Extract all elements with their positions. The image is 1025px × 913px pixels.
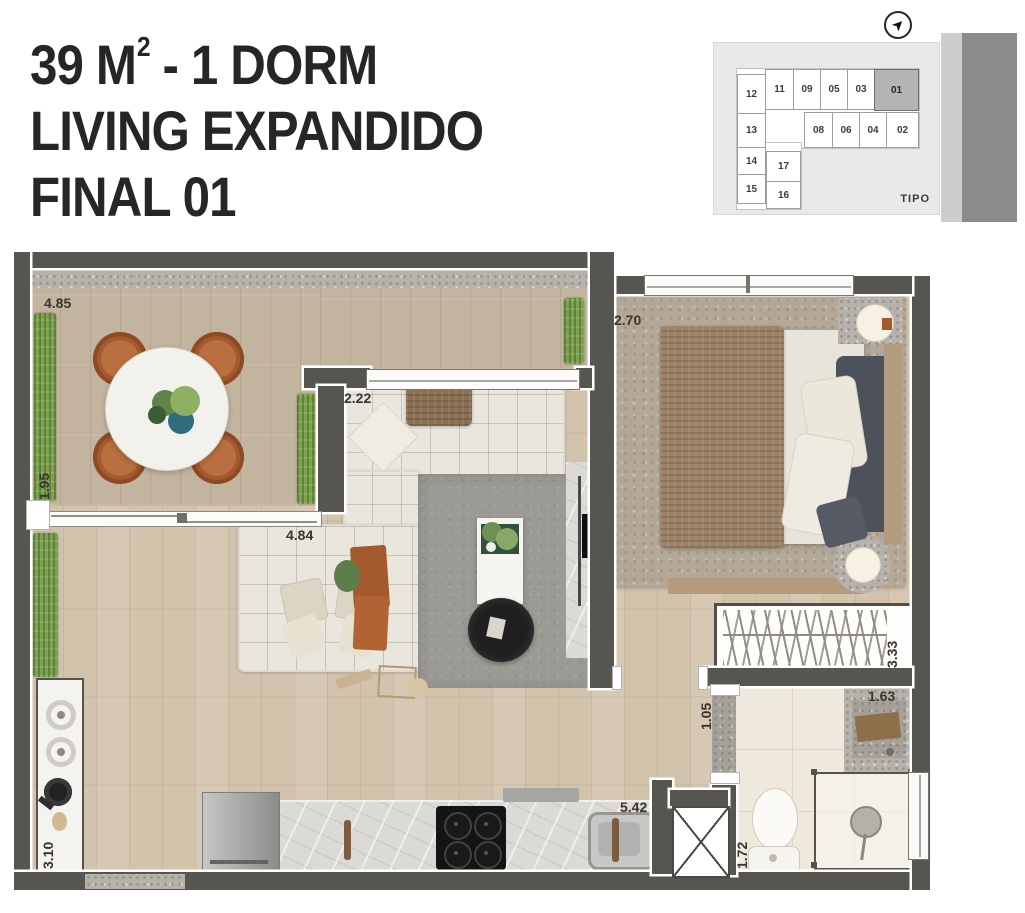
wall-balcony-divider [318,386,344,512]
dim-bedroom-width: 2.70 [614,312,641,328]
door-jamb-pillar [26,500,50,530]
sliding-door-rail [183,521,317,523]
tray-cup [486,542,496,552]
bedroom-window-mullion [746,276,750,293]
title-line-3: FINAL 01 [30,164,483,230]
table-plant-leaf-dark [148,406,166,424]
keyplan-unit-06: 06 [832,112,860,148]
service-window-sill [85,874,185,889]
counter-deco [52,812,67,831]
burner-icon [444,841,472,869]
dim-kitchen-length: 5.42 [620,799,647,815]
planter-grass-bedroom-wall [564,298,584,364]
balcony-sliding-door [46,511,322,527]
floorplan-page: 39 M2 - 1 DORM LIVING EXPANDIDO FINAL 01… [0,0,1025,913]
keyplan-unit-16: 16 [766,181,801,209]
superscript-2: 2 [137,31,150,62]
burner-ring-icon [46,737,76,767]
keyplan-unit-15: 15 [737,174,766,204]
shower-corner-post [811,769,817,775]
keyplan-unit-14: 14 [737,147,766,175]
plan-title: 39 M2 - 1 DORM LIVING EXPANDIDO FINAL 01 [30,14,545,230]
nightstand-deco [882,318,892,330]
shower-corner-post [811,862,817,868]
dim-bath-depth: 1.72 [734,842,750,869]
bed-headboard [884,340,902,544]
living-window [366,369,580,390]
keyplan-unit-04: 04 [859,112,887,148]
balcony-floor-strip [320,288,590,370]
keyplan-unit-17: 17 [766,151,801,182]
burner-icon [444,812,472,840]
wall-left [14,252,30,874]
dim-living-window: 2.22 [344,390,371,406]
keyplan-unit-11: 11 [765,69,794,110]
sliding-door-rail [51,515,181,517]
toilet-bowl [752,788,798,850]
keyplan-edge-strip-light [941,33,962,222]
sink-bowl [598,822,640,856]
dim-closet-depth: 3.33 [884,641,900,668]
keyplan-unit-08: 08 [804,112,833,148]
shower-window [908,772,929,860]
bedroom-door-jamb [612,666,622,690]
wall-balcony-cap [304,368,370,388]
vanity-tray [855,712,901,742]
burner-icon [474,812,502,840]
balcony-ledge [30,266,590,288]
keyplan-unit-01-highlighted: 01 [874,69,919,111]
dim-varanda-width: 4.85 [44,295,71,311]
wall-living-bedroom [590,252,614,688]
bedroom-door-jamb [698,666,708,690]
range-hood-shelf [503,788,579,802]
counter-faucet [344,820,351,860]
nightstand-lamp [845,547,881,583]
keyplan-tipo-label: TIPO [850,193,930,205]
shaft-duct-symbol [672,806,730,878]
burner-ring-icon [46,700,76,730]
sink-faucet [612,818,619,862]
sliding-door-handle [177,513,187,523]
cooktop [436,806,506,870]
wall-kitchen-stub [652,780,672,874]
dim-hall-width: 1.05 [698,703,714,730]
bathroom-door-jamb [710,684,740,696]
vanity-faucet [886,748,894,756]
refrigerator-handle [210,860,268,864]
bathroom-door-jamb [710,772,740,784]
keyplan-unit-12: 12 [737,74,766,114]
shower-head-icon [850,806,882,838]
keyplan-unit-03: 03 [847,69,875,110]
title-line-area: 39 M2 - 1 DORM [30,14,483,98]
keyplan-edge-strip-dark [962,33,1017,222]
keyplan-unit-02: 02 [886,112,919,148]
planter-grass-divider [297,394,317,504]
floor-deco-basket [408,678,428,698]
bed-bench [668,578,864,594]
keyplan-unit-05: 05 [820,69,848,110]
tray-plant [496,528,518,550]
dim-varanda-depth: 1.95 [36,473,52,500]
bathroom-door-threshold [712,694,736,774]
toilet-flush-button [769,854,777,862]
keyplan-unit-09: 09 [793,69,821,110]
keyplan-unit-13: 13 [737,113,766,148]
table-plant-leaf [170,386,200,416]
compass-north-icon: ➤ [884,11,912,39]
dim-living-width: 4.84 [286,527,313,543]
burner-icon [474,841,502,869]
dim-bath-width: 1.63 [868,688,895,704]
planter-grass-left-lower [33,533,58,677]
dim-counter-length: 3.10 [40,842,56,869]
sofa-plant [334,560,360,592]
media-shelf-rail [578,476,581,606]
title-line-2: LIVING EXPANDIDO [30,98,483,164]
bed-blanket [660,326,784,548]
armchair-rust-throw [353,595,390,651]
wall-shaft-top [670,790,728,806]
sofa-section-chaise [238,524,420,672]
wall-top-balcony [14,252,612,268]
hanger-icons [723,610,887,668]
